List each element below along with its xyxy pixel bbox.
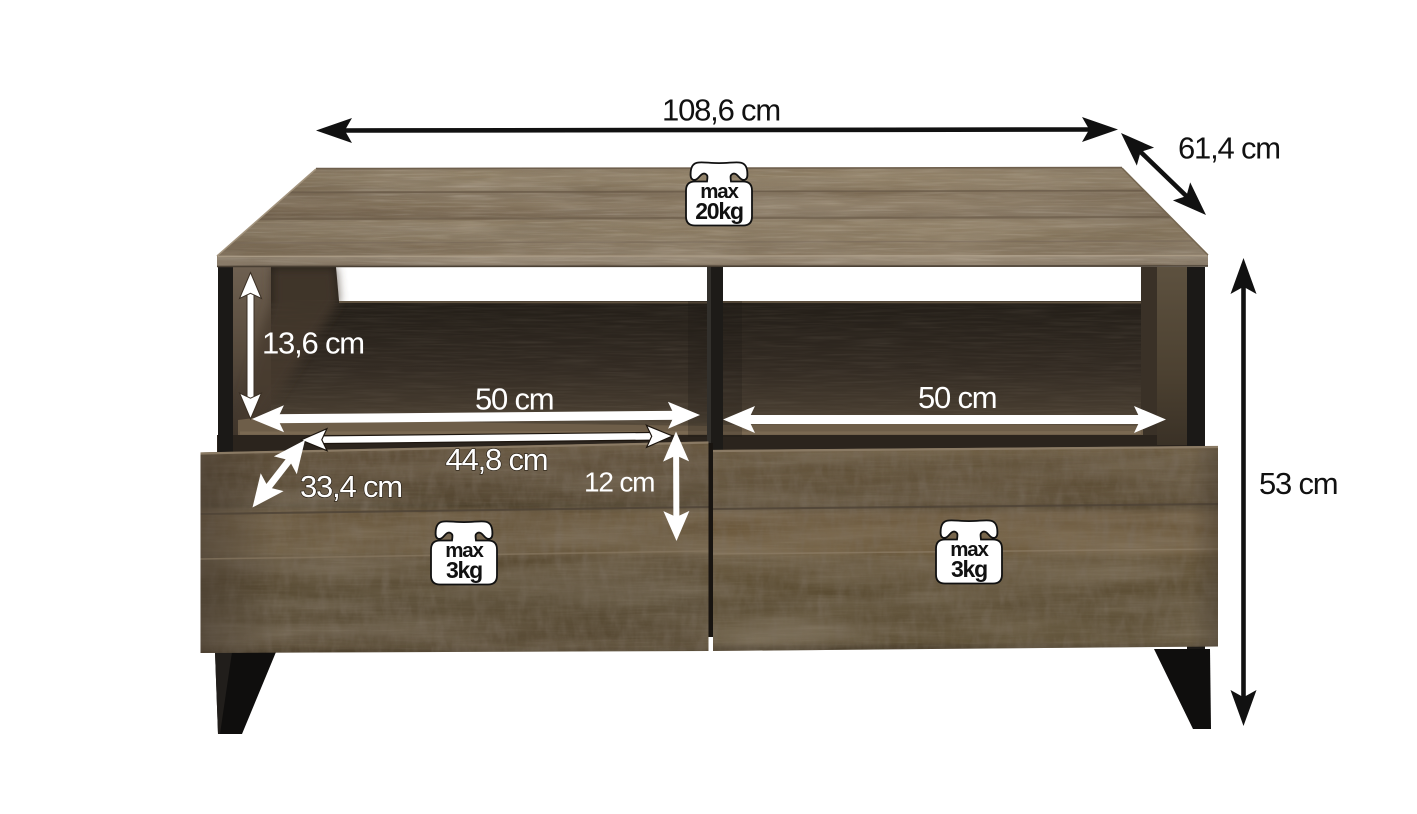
svg-text:50 cm: 50 cm <box>918 380 996 415</box>
svg-text:3kg: 3kg <box>951 556 987 582</box>
svg-text:50 cm: 50 cm <box>475 382 553 417</box>
svg-text:53 cm: 53 cm <box>1259 466 1337 501</box>
svg-text:61,4 cm: 61,4 cm <box>1178 131 1280 166</box>
svg-text:44,8 cm: 44,8 cm <box>446 442 548 477</box>
svg-text:20kg: 20kg <box>695 198 743 224</box>
svg-text:12 cm: 12 cm <box>584 467 654 498</box>
svg-text:33,4 cm: 33,4 cm <box>300 469 402 504</box>
svg-text:13,6 cm: 13,6 cm <box>262 326 364 361</box>
svg-text:108,6 cm: 108,6 cm <box>662 93 780 128</box>
svg-text:3kg: 3kg <box>446 557 482 583</box>
